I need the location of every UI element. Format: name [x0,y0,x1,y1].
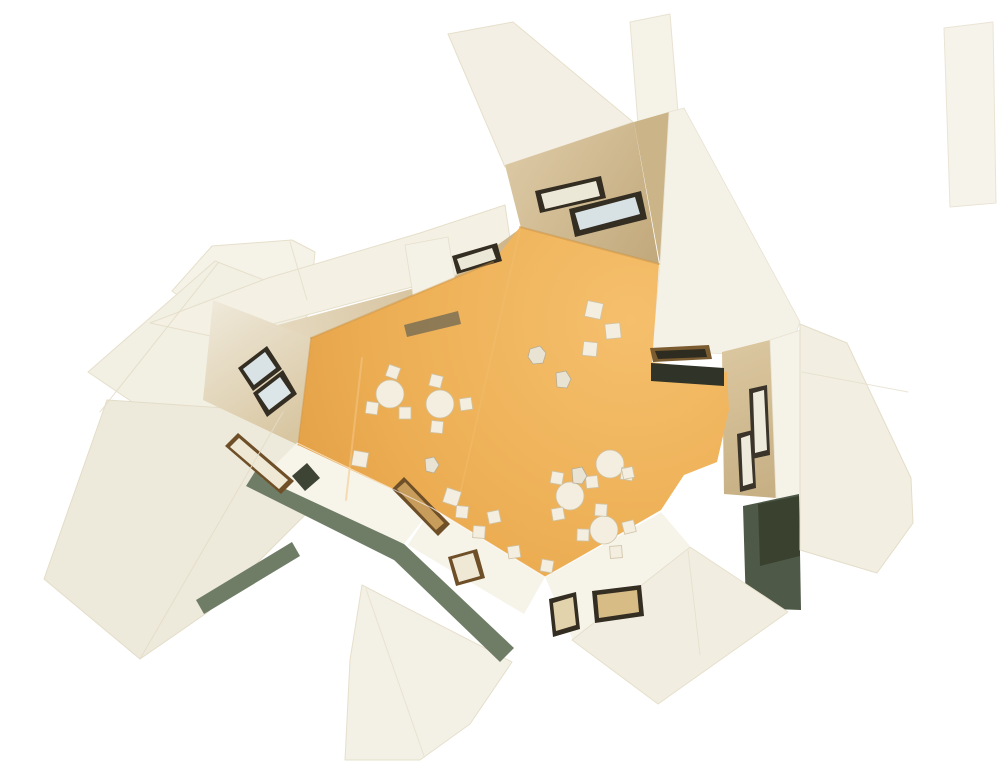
round-table-2 [426,390,454,418]
architectural-model-photo [0,0,1000,764]
square-table-chair-5 [459,397,473,411]
square-table-chair-20 [540,559,554,573]
window-f4-glass [553,597,576,631]
square-table-chair-22 [455,505,468,518]
spike-top-nub [630,14,678,124]
round-table-3 [596,450,624,478]
square-table-chair-16 [595,504,608,517]
square-table-chair-6 [430,420,443,433]
square-table-chair-15 [551,507,565,521]
square-table-chair-25 [621,466,634,479]
square-table-chair-18 [577,529,589,541]
square-table-chair-13 [585,475,598,488]
square-table-chair-7 [585,301,604,320]
square-table-chair-23 [487,510,501,524]
square-table-chair-4 [429,374,444,389]
round-table-4 [556,482,584,510]
square-table-chair-8 [582,341,597,356]
square-table-chair-24 [473,526,486,539]
square-table-chair-3 [399,407,411,419]
round-table-5 [590,516,618,544]
square-table-chair-10 [351,450,368,467]
square-table-chair-2 [365,401,379,415]
right-doorway-shade [758,496,800,566]
model-photo-canvas [0,0,1000,764]
square-table-chair-17 [622,520,637,535]
square-table-chair-21 [507,545,521,559]
square-table-chair-9 [605,323,621,339]
topright-sliver-panel [944,22,996,207]
square-table-chair-12 [550,471,564,485]
round-table-1 [376,380,404,408]
square-table-chair-19 [610,546,623,559]
